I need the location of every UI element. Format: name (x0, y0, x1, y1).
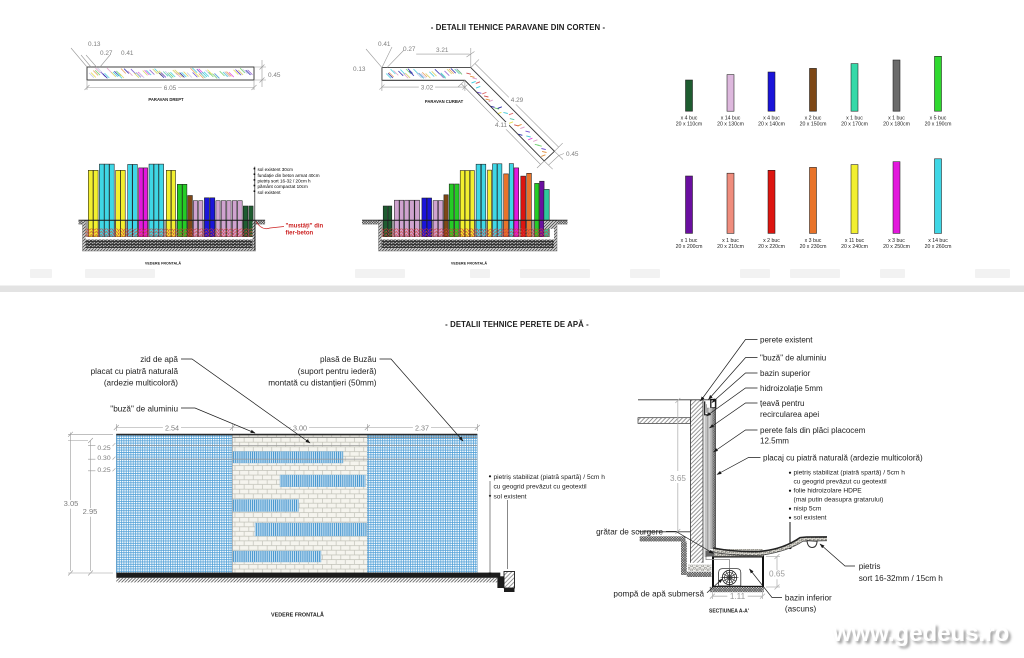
svg-text:2.54: 2.54 (165, 424, 179, 433)
svg-text:4.29: 4.29 (511, 97, 524, 104)
svg-text:recircularea apei: recircularea apei (760, 410, 819, 419)
svg-text:perete existent: perete existent (760, 336, 813, 345)
svg-text:"buză" de aluminiu: "buză" de aluminiu (110, 405, 178, 414)
svg-text:0.30: 0.30 (97, 455, 110, 462)
svg-text:"mustăți" din: "mustăți" din (286, 224, 324, 230)
svg-text:cu geogrid prevăzut cu geotext: cu geogrid prevăzut cu geotextil (494, 484, 588, 491)
svg-text:"buză" de aluminiu: "buză" de aluminiu (760, 354, 826, 363)
svg-text:bazin superior: bazin superior (760, 369, 811, 378)
svg-text:placaj cu piatră naturală (ard: placaj cu piatră naturală (ardezie multi… (763, 454, 923, 463)
svg-text:sol existent: sol existent (794, 515, 827, 522)
svg-text:pietriș stabilizat (piatră spa: pietriș stabilizat (piatră spartă) / 5cm… (794, 470, 906, 477)
svg-text:0.27: 0.27 (403, 46, 416, 53)
svg-text:(mai putin deasupra gratarului: (mai putin deasupra gratarului) (794, 497, 884, 504)
svg-text:pietriș sort 16-32 / 20cm h: pietriș sort 16-32 / 20cm h (258, 179, 312, 184)
svg-text:www.gedeus.ro: www.gedeus.ro (832, 620, 1009, 647)
svg-text:fier-beton: fier-beton (286, 231, 314, 237)
svg-text:VEDERE FRONTALĂ: VEDERE FRONTALĂ (451, 261, 488, 266)
svg-text:0.13: 0.13 (88, 41, 101, 48)
svg-text:pământ compactat 10cm: pământ compactat 10cm (258, 184, 308, 189)
svg-text:pompă de apă submersă: pompă de apă submersă (613, 590, 704, 599)
svg-text:x 14 buc: x 14 buc (721, 115, 741, 121)
svg-text:2.95: 2.95 (83, 507, 98, 516)
svg-text:0.45: 0.45 (566, 151, 579, 158)
svg-text:0.45: 0.45 (268, 72, 281, 79)
svg-text:cu geogrid prevăzut cu geotext: cu geogrid prevăzut cu geotextil (794, 479, 888, 486)
svg-text:x 14 buc: x 14 buc (928, 238, 948, 244)
svg-text:20 x 140cm: 20 x 140cm (758, 122, 785, 128)
svg-text:x 1 buc: x 1 buc (846, 115, 863, 121)
svg-text:(ardezie multicoloră): (ardezie multicoloră) (104, 379, 178, 388)
svg-text:0.25: 0.25 (97, 467, 110, 474)
svg-text:placat cu piatră naturală: placat cu piatră naturală (91, 367, 179, 376)
svg-text:zid de apă: zid de apă (140, 355, 178, 364)
svg-text:x 1 buc: x 1 buc (722, 238, 739, 244)
svg-text:20 x 150cm: 20 x 150cm (800, 122, 827, 128)
svg-text:20 x 230cm: 20 x 230cm (800, 244, 827, 250)
svg-text:0.41: 0.41 (378, 41, 391, 48)
svg-text:hidroizolație 5mm: hidroizolație 5mm (760, 384, 823, 393)
svg-text:x 3 buc: x 3 buc (888, 238, 905, 244)
svg-text:20 x 260cm: 20 x 260cm (925, 244, 952, 250)
svg-text:grătar de scurgere: grătar de scurgere (596, 528, 663, 537)
svg-text:3.65: 3.65 (670, 474, 686, 483)
svg-text:0.65: 0.65 (769, 570, 785, 579)
svg-text:pietriș stabilizat (piatră spa: pietriș stabilizat (piatră spartă) / 5cm… (494, 474, 606, 481)
svg-text:2.37: 2.37 (415, 424, 429, 433)
svg-text:x 4 buc: x 4 buc (681, 115, 698, 121)
svg-text:PARAVAN CURBAT: PARAVAN CURBAT (425, 99, 464, 104)
svg-text:20 x 250cm: 20 x 250cm (883, 244, 910, 250)
svg-text:x 1 buc: x 1 buc (681, 238, 698, 244)
svg-text:SECȚIUNEA A-A': SECȚIUNEA A-A' (709, 609, 749, 615)
svg-text:20 x 170cm: 20 x 170cm (841, 122, 868, 128)
svg-text:bazin inferior: bazin inferior (785, 594, 832, 603)
svg-text:sol existent: sol existent (258, 190, 282, 195)
svg-text:perete fals din plăci placocem: perete fals din plăci placocem (760, 426, 866, 435)
svg-text:x 3 buc: x 3 buc (805, 238, 822, 244)
svg-text:montată cu distanțieri (50mm): montată cu distanțieri (50mm) (268, 379, 377, 388)
svg-text:20 x 130cm: 20 x 130cm (717, 122, 744, 128)
svg-text:20 x 210cm: 20 x 210cm (717, 244, 744, 250)
svg-text:6.05: 6.05 (164, 85, 177, 92)
svg-text:x 4 buc: x 4 buc (763, 115, 780, 121)
svg-text:fundație din beton armat 40cm: fundație din beton armat 40cm (258, 173, 320, 178)
svg-text:20 x 240cm: 20 x 240cm (841, 244, 868, 250)
svg-text:x 2 buc: x 2 buc (805, 115, 822, 121)
svg-text:VEDERE FRONTALĂ: VEDERE FRONTALĂ (145, 261, 182, 266)
svg-text:0.27: 0.27 (100, 50, 113, 57)
svg-text:- DETALII TEHNICE PERETE DE AP: - DETALII TEHNICE PERETE DE APĂ - (445, 320, 589, 329)
svg-text:20 x 220cm: 20 x 220cm (758, 244, 785, 250)
svg-text:x 11 buc: x 11 buc (845, 238, 865, 244)
svg-text:sol existent: sol existent (494, 493, 527, 500)
svg-text:3.21: 3.21 (436, 47, 449, 54)
svg-text:0.41: 0.41 (121, 50, 134, 57)
svg-text:4.11: 4.11 (495, 122, 507, 129)
svg-text:- DETALII TEHNICE PARAVANE DIN: - DETALII TEHNICE PARAVANE DIN CORTEN - (431, 23, 606, 32)
svg-text:20 x 190cm: 20 x 190cm (925, 122, 952, 128)
svg-text:PARAVAN DREPT: PARAVAN DREPT (148, 97, 184, 102)
svg-text:3.05: 3.05 (64, 499, 79, 508)
svg-text:nisip 5cm: nisip 5cm (794, 506, 822, 513)
svg-text:sol existent 30cm: sol existent 30cm (258, 167, 294, 172)
svg-text:plasă de Buzău: plasă de Buzău (320, 355, 377, 364)
svg-text:12.5mm: 12.5mm (760, 437, 789, 446)
svg-text:x 2 buc: x 2 buc (763, 238, 780, 244)
svg-text:3.02: 3.02 (421, 85, 434, 92)
svg-text:folie hidroizolare HDPE: folie hidroizolare HDPE (794, 488, 863, 495)
svg-text:(ascuns): (ascuns) (785, 605, 817, 614)
svg-text:pietris: pietris (859, 562, 881, 571)
svg-text:x 1 buc: x 1 buc (888, 115, 905, 121)
svg-text:20 x 200cm: 20 x 200cm (676, 244, 703, 250)
svg-text:1.11: 1.11 (730, 592, 746, 601)
svg-text:țeavă pentru: țeavă pentru (760, 399, 804, 408)
svg-text:20 x 180cm: 20 x 180cm (883, 122, 910, 128)
svg-text:VEDERE FRONTALĂ: VEDERE FRONTALĂ (271, 612, 324, 619)
svg-text:20 x 110cm: 20 x 110cm (676, 122, 702, 128)
svg-text:3.00: 3.00 (293, 424, 307, 433)
svg-text:0.13: 0.13 (353, 66, 366, 73)
svg-text:(suport pentru iederă): (suport pentru iederă) (298, 367, 377, 376)
svg-text:0.25: 0.25 (97, 445, 110, 452)
svg-text:sort 16-32mm / 15cm h: sort 16-32mm / 15cm h (859, 574, 944, 583)
svg-text:x 5 buc: x 5 buc (930, 115, 947, 121)
